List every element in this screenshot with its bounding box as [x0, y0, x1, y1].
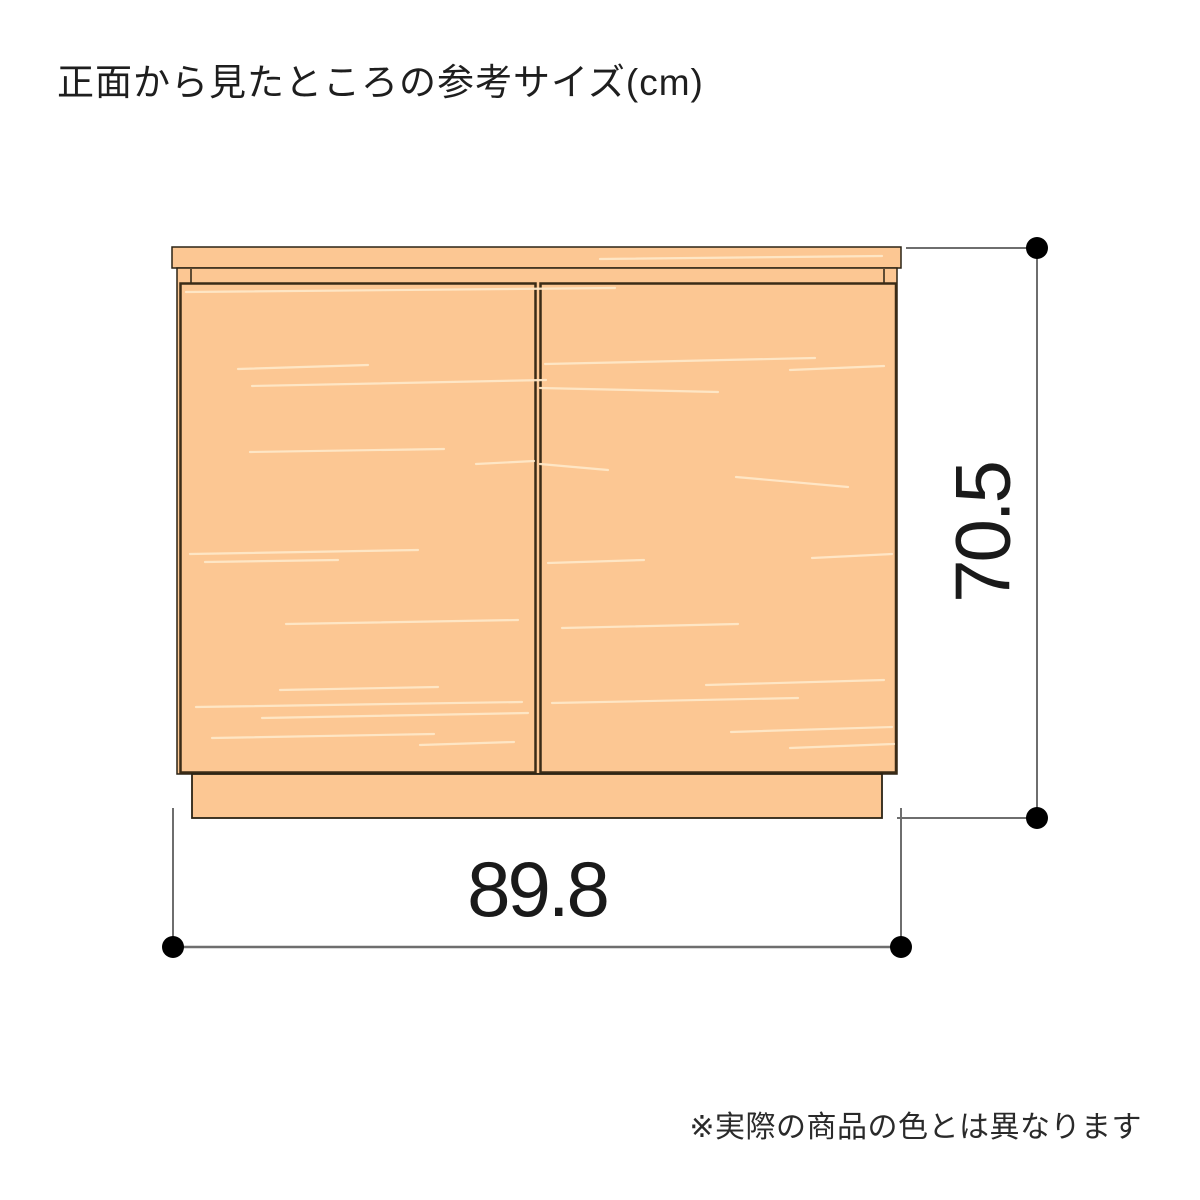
- diagram-page: 正面から見たところの参考サイズ(cm): [0, 0, 1200, 1200]
- cabinet-base: [192, 774, 882, 818]
- height-dimension-label: 70.5: [938, 462, 1026, 602]
- width-dimension-label: 89.8: [467, 845, 607, 933]
- cabinet-front-view: [172, 247, 901, 818]
- dimension-dot: [162, 936, 184, 958]
- cabinet-left-door: [181, 284, 536, 773]
- dimension-dot: [890, 936, 912, 958]
- furniture-dimension-diagram: 70.5 89.8: [0, 0, 1200, 1200]
- dimension-dot: [1026, 237, 1048, 259]
- color-disclaimer-note: ※実際の商品の色とは異なります: [689, 1102, 1142, 1146]
- dimension-dot: [1026, 807, 1048, 829]
